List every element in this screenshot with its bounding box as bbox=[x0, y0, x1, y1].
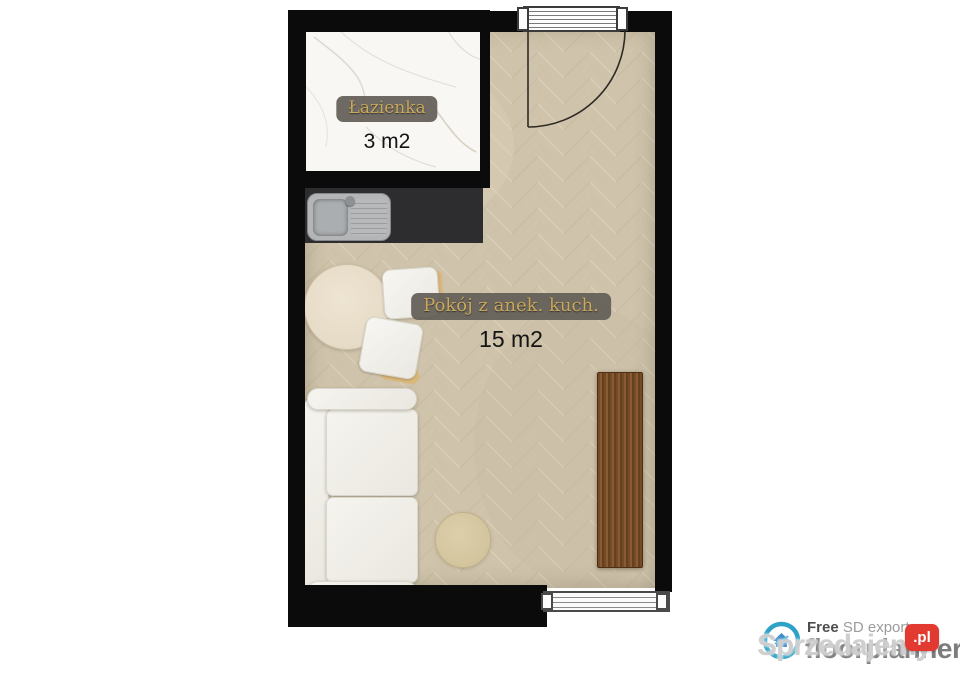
floorplanner-brand-text: floorplanner bbox=[805, 633, 960, 665]
free-label: Free bbox=[807, 619, 839, 636]
wall-top-left bbox=[288, 11, 523, 32]
floorplanner-logo-icon bbox=[761, 620, 802, 661]
sink-faucet-icon bbox=[345, 196, 355, 206]
pl-watermark-badge: .pl bbox=[905, 624, 939, 651]
window-post bbox=[656, 593, 668, 610]
sofa-seat-cushion bbox=[326, 409, 418, 496]
sofa-armrest bbox=[307, 388, 417, 410]
sofa-seat-cushion bbox=[326, 497, 418, 583]
floor-plan: Łazienka 3 m2 Pokój z anek. kuch. 15 m2 bbox=[288, 10, 672, 627]
dining-chair-2 bbox=[358, 315, 425, 380]
floor-plan-canvas: Łazienka 3 m2 Pokój z anek. kuch. 15 m2 … bbox=[0, 0, 960, 679]
pouf-rug bbox=[435, 512, 491, 568]
sprzedajemy-watermark: Sprzedajemy bbox=[757, 629, 907, 663]
wall-bottom bbox=[288, 585, 547, 627]
main-room-area-label: 15 m2 bbox=[479, 326, 543, 353]
free-export-label: Free SD export bbox=[807, 619, 910, 636]
sink-drainboard bbox=[351, 199, 387, 236]
sofa-backrest bbox=[302, 397, 329, 595]
door-post bbox=[616, 7, 628, 31]
wall-left bbox=[288, 11, 305, 627]
sink-basin bbox=[313, 199, 348, 236]
bathroom-area-label: 3 m2 bbox=[364, 130, 411, 154]
door-post bbox=[517, 7, 529, 31]
export-label: SD export bbox=[843, 619, 910, 636]
main-room-label-badge: Pokój z anek. kuch. bbox=[411, 293, 611, 320]
sofa bbox=[302, 388, 420, 604]
wooden-desk bbox=[597, 372, 643, 568]
chair-cushion bbox=[358, 315, 425, 380]
wall-right bbox=[655, 11, 672, 592]
bathroom-label-badge: Łazienka bbox=[336, 96, 437, 122]
door-swing-arc bbox=[521, 30, 626, 135]
window-bottom bbox=[543, 591, 670, 612]
kitchen-sink bbox=[307, 193, 391, 241]
window-post bbox=[541, 593, 553, 610]
entry-door bbox=[523, 6, 620, 32]
